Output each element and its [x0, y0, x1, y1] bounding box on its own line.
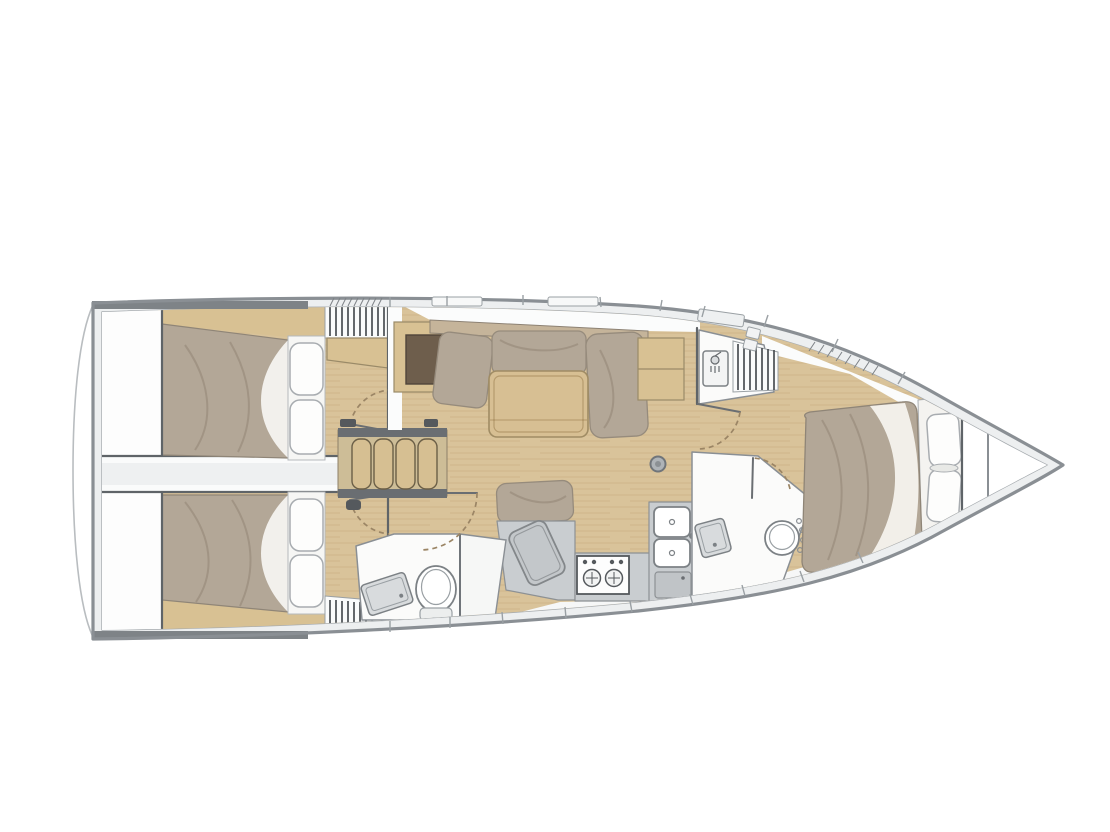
galley-sink: [654, 507, 690, 537]
pillow: [926, 413, 962, 467]
pillow: [290, 343, 323, 395]
pillow: [290, 555, 323, 607]
grab-handle: [340, 419, 356, 427]
engine-compartment: [95, 456, 345, 492]
grab-handle: [424, 419, 438, 427]
galley-sink: [654, 539, 690, 567]
step: [396, 439, 415, 489]
stove: [577, 556, 629, 594]
settee-cushion: [492, 331, 586, 374]
pillow: [290, 499, 323, 551]
step: [418, 439, 437, 489]
step: [352, 439, 371, 489]
floor-plan-canvas: [0, 0, 1110, 832]
top-load-locker: [655, 572, 691, 598]
transom-platform: [73, 305, 93, 637]
step: [374, 439, 393, 489]
grab-handle: [346, 500, 361, 510]
salon-table: [489, 371, 588, 437]
pillow-divider: [930, 464, 958, 472]
locker-louvers: [738, 344, 774, 390]
yacht-floor-plan: [0, 0, 1110, 832]
settee-cushion: [432, 331, 494, 409]
pillow: [290, 400, 323, 454]
companionway-steps: [338, 419, 447, 510]
